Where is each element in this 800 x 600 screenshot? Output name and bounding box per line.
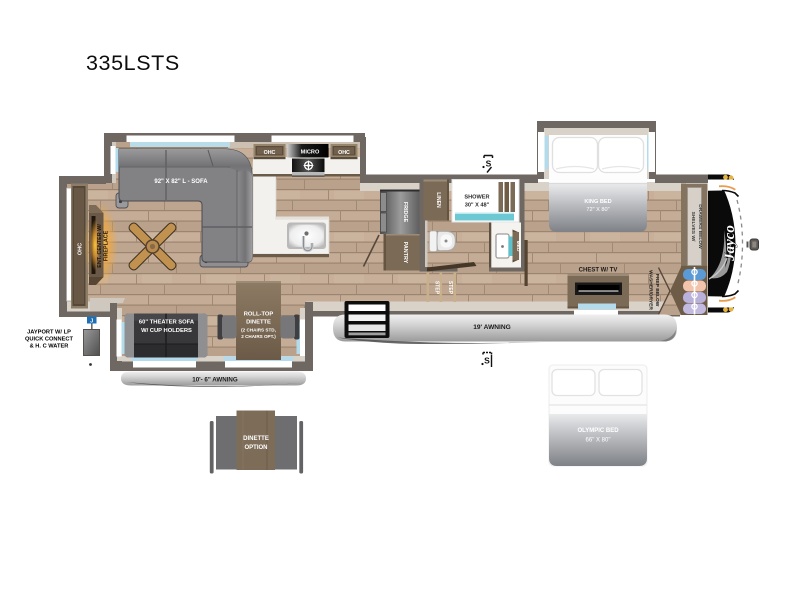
svg-text:SHELVES W/: SHELVES W/ [690,212,696,242]
svg-text:STEP: STEP [434,281,440,295]
svg-text:(2 CHAIRS STD,: (2 CHAIRS STD, [241,328,276,333]
svg-text:CHEST W/ TV: CHEST W/ TV [579,268,618,274]
svg-text:J: J [90,318,93,324]
svg-text:S: S [484,356,490,366]
svg-text:ROLL-TOP: ROLL-TOP [244,312,274,318]
svg-text:MED: MED [515,241,521,252]
svg-text:19' AWNING: 19' AWNING [473,324,511,331]
svg-text:LINEN: LINEN [435,192,441,208]
svg-text:& H. C WATER: & H. C WATER [30,344,69,350]
svg-text:SHOWER: SHOWER [464,195,489,201]
svg-text:DINETTE: DINETTE [246,320,271,326]
svg-text:72" X 80": 72" X 80" [586,207,609,213]
svg-text:66" X 80": 66" X 80" [586,438,611,444]
svg-text:OLYMPIC BED: OLYMPIC BED [577,428,619,434]
svg-text:JAYPORT W/ LP: JAYPORT W/ LP [27,330,71,336]
svg-text:OHC: OHC [338,150,350,156]
svg-text:Jayco: Jayco [722,225,738,262]
svg-text:60" THEATER SOFA: 60" THEATER SOFA [139,320,195,326]
svg-text:FIREPLACE: FIREPLACE [104,230,110,261]
svg-text:OHC: OHC [264,150,276,156]
svg-text:KING BED: KING BED [584,199,611,205]
svg-text:PANTRY: PANTRY [402,242,408,264]
svg-text:30" X 48": 30" X 48" [465,203,490,209]
svg-text:DINETTE: DINETTE [243,436,269,442]
svg-text:STEP: STEP [447,281,453,295]
svg-text:PREP BELOW: PREP BELOW [654,274,660,307]
svg-text:ENT. CENTER W/: ENT. CENTER W/ [97,224,103,268]
svg-text:335LSTS: 335LSTS [86,51,180,75]
svg-text:MICRO: MICRO [301,150,320,156]
svg-text:QUICK CONNECT: QUICK CONNECT [25,337,74,343]
svg-text:OPTION: OPTION [244,445,267,451]
svg-text:W/ CUP HOLDERS: W/ CUP HOLDERS [141,328,192,334]
svg-text:2 CHAIRS OPT.): 2 CHAIRS OPT.) [241,334,276,339]
svg-text:DRAWERS BELOW: DRAWERS BELOW [697,204,703,249]
svg-text:OHC: OHC [78,243,84,255]
svg-text:FRIDGE: FRIDGE [402,202,408,223]
svg-text:10'- 6" AWNING: 10'- 6" AWNING [192,377,238,384]
svg-text:92" X 82" L - SOFA: 92" X 82" L - SOFA [154,179,208,185]
svg-text:WASHER/DRYER: WASHER/DRYER [648,270,654,310]
